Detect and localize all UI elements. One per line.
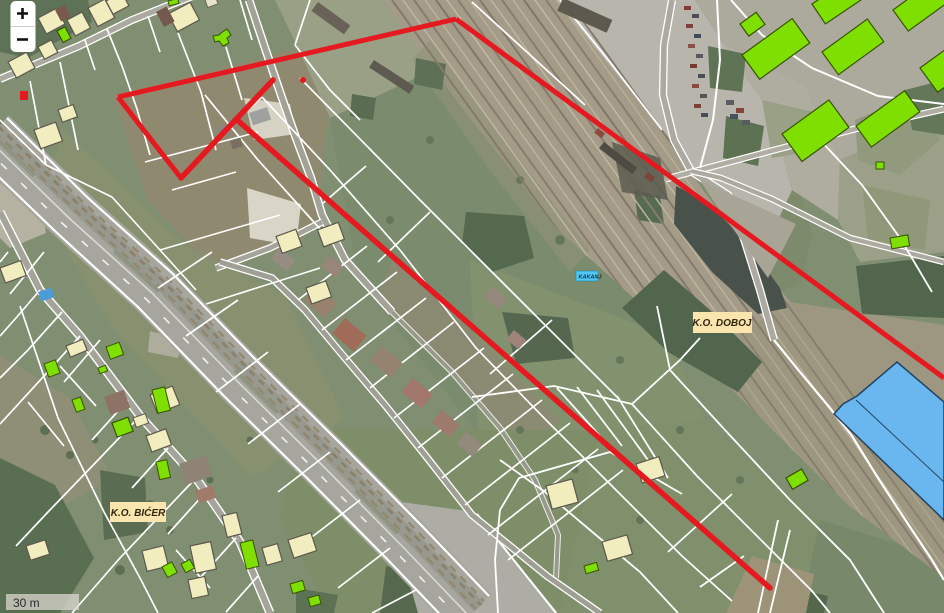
svg-text:K.O. DOBOJ: K.O. DOBOJ: [693, 318, 752, 329]
svg-text:K.O. BIĆER: K.O. BIĆER: [111, 506, 166, 519]
svg-text:30 m: 30 m: [13, 596, 40, 610]
svg-text:KAKANJ: KAKANJ: [579, 275, 603, 281]
